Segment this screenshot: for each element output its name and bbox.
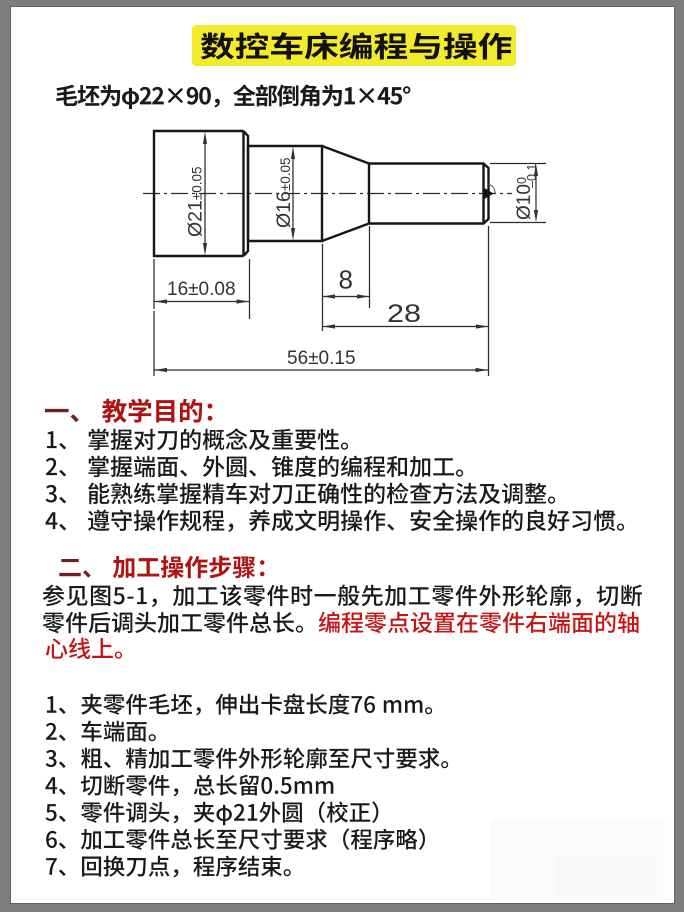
svg-text:56±0.15: 56±0.15 — [287, 348, 356, 369]
svg-text:28: 28 — [387, 300, 421, 328]
svg-text:Ø16±0.05: Ø16±0.05 — [273, 157, 295, 228]
svg-text:Ø21±0.05: Ø21±0.05 — [185, 166, 207, 237]
svg-text:16±0.08: 16±0.08 — [167, 279, 236, 300]
svg-text:–0.1: –0.1 — [525, 164, 539, 188]
svg-text:8: 8 — [339, 265, 353, 295]
svg-text:Ø10: Ø10 — [514, 184, 535, 220]
